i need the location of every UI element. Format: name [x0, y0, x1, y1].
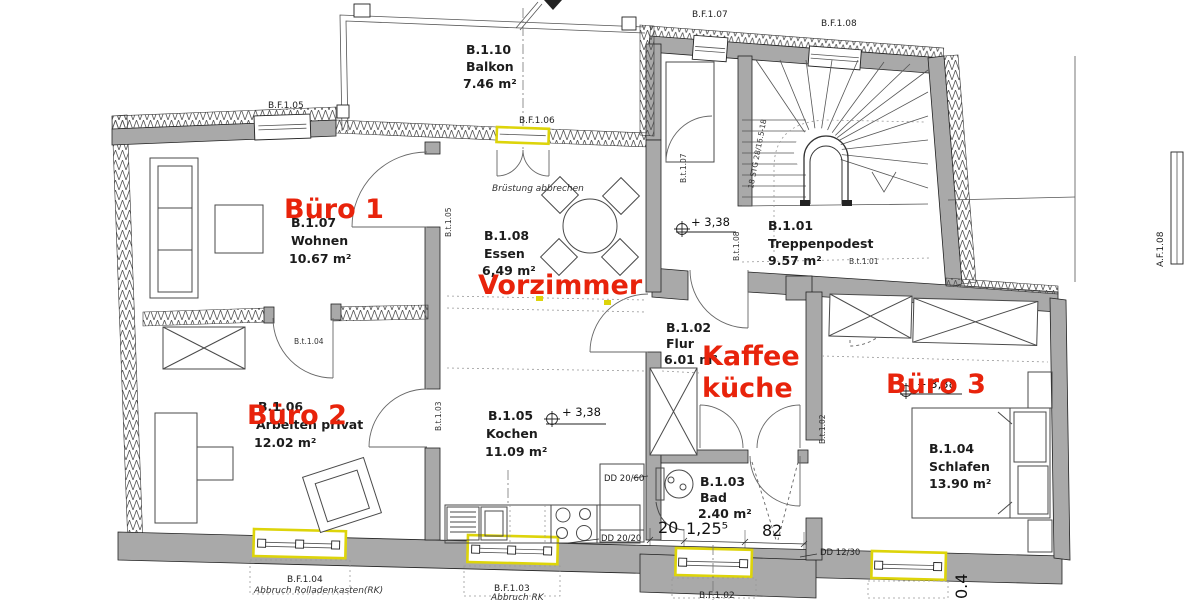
wardrobe-flur	[650, 368, 697, 455]
armchair	[303, 458, 382, 533]
dim-20: 20	[658, 518, 678, 537]
kochen-code: B.1.05	[488, 408, 533, 423]
dim-dd2020: DD 20/20	[601, 534, 641, 544]
label-af108: A.F.1.08	[1156, 231, 1166, 267]
label-bt102: B.t.1.02	[818, 414, 827, 444]
wardrobes-schlafen	[829, 294, 1038, 345]
label-bf105: B.F.1.05	[268, 101, 304, 111]
door-bt107	[666, 62, 714, 162]
annotation-vorzimmer: Vorzimmer	[478, 270, 643, 301]
desk	[155, 413, 233, 523]
balcony-double-door-swing	[497, 150, 549, 176]
label-bt101: B.t.1.01	[849, 257, 879, 266]
note-abbruch-short: Abbruch RK	[490, 593, 545, 600]
window-bf104	[253, 529, 346, 558]
arbeiten-area: 12.02 m²	[254, 435, 316, 450]
label-bt108: B.t.1.08	[732, 231, 741, 261]
label-bf106: B.F.1.06	[519, 116, 555, 126]
wardrobe-buero2	[163, 327, 245, 369]
annotation-kaffee-line2: küche	[702, 373, 793, 404]
treppenpodest-code: B.1.01	[768, 218, 813, 233]
coffee-table	[215, 205, 263, 253]
essen-name: Essen	[484, 246, 525, 261]
schlafen-area: 13.90 m²	[929, 476, 991, 491]
balkon-name: Balkon	[466, 59, 514, 74]
level-kochen: + 3,38	[562, 405, 601, 419]
bad-name: Bad	[700, 490, 727, 505]
nightstand-top	[1028, 372, 1052, 408]
balcony-door	[496, 127, 548, 144]
floor-plan: B.1.10 Balkon 7.46 m² B.1.07 Wohnen 10.6…	[0, 0, 1200, 600]
nightstand-bottom	[1028, 520, 1052, 552]
label-bt107: B.t.1.07	[679, 153, 688, 183]
dim-04: 0.4	[952, 574, 971, 599]
flur-closet-doors	[700, 405, 800, 448]
door-bt104	[273, 318, 333, 378]
treppenpodest-name: Treppenpodest	[768, 236, 873, 251]
kochen-area: 11.09 m²	[485, 444, 547, 459]
dim-dd2060: DD 20/60	[604, 474, 644, 484]
wohnen-area: 10.67 m²	[289, 251, 351, 266]
annotation-kaffee-line1: Kaffee	[702, 341, 800, 372]
essen-code: B.1.08	[484, 228, 529, 243]
level-flur: + 3,38	[691, 215, 730, 229]
treppenpodest-area: 9.57 m²	[768, 253, 822, 268]
annotation-buero3: Büro 3	[886, 369, 986, 400]
label-bt105: B.t.1.05	[444, 207, 453, 237]
dim-125: 1,25⁵	[686, 519, 728, 538]
note-bruestung: Brüstung abbrechen	[492, 184, 584, 194]
flur-code: B.1.02	[666, 320, 711, 335]
kochen-name: Kochen	[486, 426, 538, 441]
label-bt104: B.t.1.04	[294, 337, 324, 346]
dim-dd1230: DD 12/30	[820, 548, 860, 558]
door-bt103	[369, 389, 427, 447]
door-essen-flur	[590, 294, 648, 352]
dim-82: 82	[762, 521, 782, 540]
balkon-code: B.1.10	[466, 42, 511, 57]
schlafen-name: Schlafen	[929, 459, 990, 474]
annotation-buero1: Büro 1	[284, 194, 384, 225]
flur-name: Flur	[666, 336, 695, 351]
balkon-area: 7.46 m²	[463, 76, 517, 91]
sofa	[150, 158, 198, 298]
label-bf107: B.F.1.07	[692, 10, 728, 20]
note-abbruch-long: Abbruch Rolladenkasten(RK)	[253, 586, 383, 596]
annotation-buero2: Büro 2	[247, 400, 347, 431]
label-bf108: B.F.1.08	[821, 19, 857, 29]
wohnen-name: Wohnen	[291, 233, 348, 248]
schlafen-code: B.1.04	[929, 441, 974, 456]
window-bf102	[675, 548, 752, 577]
bad-code: B.1.03	[700, 474, 745, 489]
window-bf105	[254, 114, 311, 140]
label-bt103: B.t.1.03	[434, 401, 443, 431]
label-bf102: B.F.1.02	[699, 591, 735, 600]
label-bf104: B.F.1.04	[287, 575, 323, 585]
window-schlafen	[871, 551, 946, 580]
